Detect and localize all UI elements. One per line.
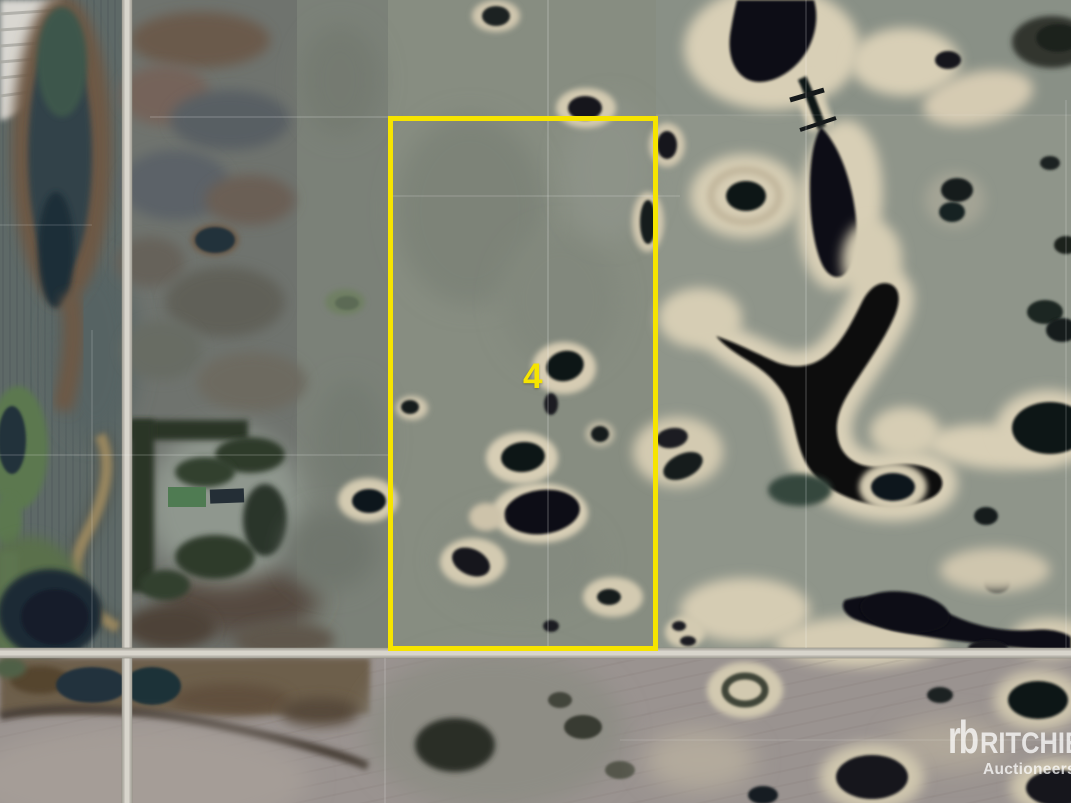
watermark-brand-text: RITCHIE [980, 729, 1071, 759]
parcel-number-label: 4 [523, 359, 542, 394]
watermark-subtitle-text: Auctioneers [980, 762, 1071, 778]
ritchie-bros-logo: rb [948, 716, 977, 758]
aerial-map: 4 rb RITCHIE Auctioneers [0, 0, 1071, 803]
west-fields [0, 0, 137, 660]
watermark: rb RITCHIE Auctioneers [948, 716, 1071, 778]
south-fields [0, 650, 1071, 803]
